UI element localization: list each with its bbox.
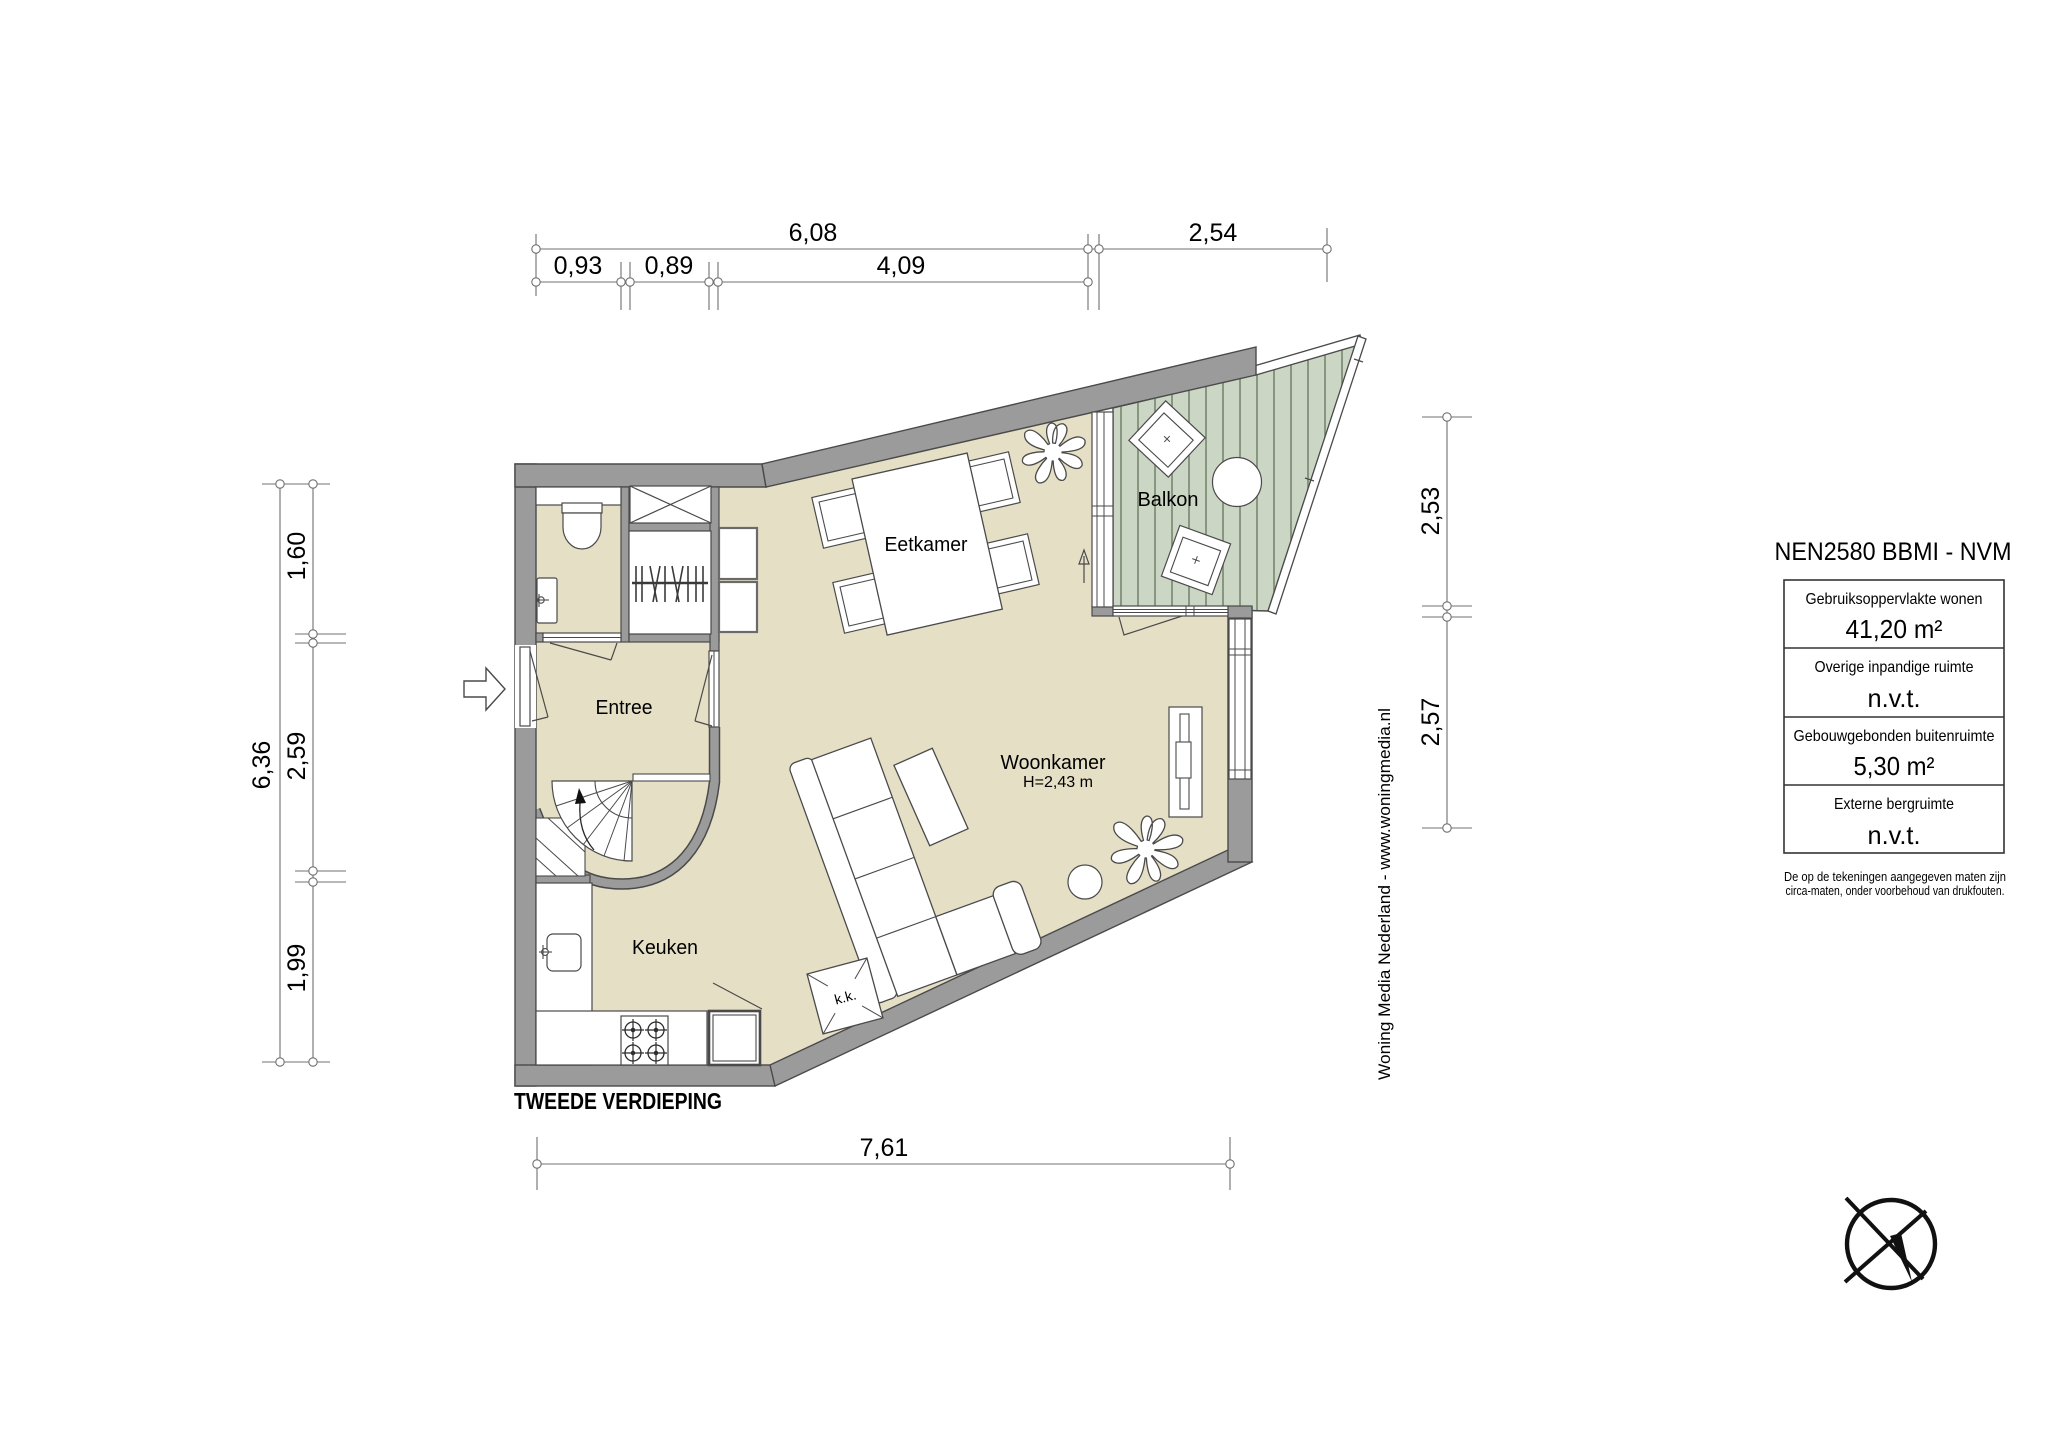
svg-text:De op de tekeningen aangegeven: De op de tekeningen aangegeven maten zij… [1784,869,2006,884]
svg-text:H=2,43 m: H=2,43 m [1023,774,1093,791]
svg-text:0,93: 0,93 [554,252,603,280]
svg-text:Eetkamer: Eetkamer [885,534,968,556]
svg-text:TWEEDE VERDIEPING: TWEEDE VERDIEPING [514,1088,722,1114]
svg-text:7,61: 7,61 [860,1134,909,1162]
svg-text:6,08: 6,08 [789,219,838,247]
svg-text:Woonkamer: Woonkamer [1001,752,1106,774]
svg-text:Keuken: Keuken [632,937,698,959]
svg-text:4,09: 4,09 [877,252,926,280]
svg-text:2,53: 2,53 [1417,487,1445,536]
svg-text:1,60: 1,60 [283,532,311,581]
svg-text:5,30 m²: 5,30 m² [1854,751,1935,781]
svg-text:Gebouwgebonden buitenruimte: Gebouwgebonden buitenruimte [1794,728,1995,745]
svg-text:circa-maten, onder voorbehoud: circa-maten, onder voorbehoud van drukfo… [1786,883,2005,898]
svg-text:Balkon: Balkon [1138,489,1199,511]
svg-text:2,57: 2,57 [1417,698,1445,747]
svg-text:0,89: 0,89 [645,252,694,280]
svg-text:1,99: 1,99 [283,944,311,993]
svg-text:2,59: 2,59 [283,732,311,781]
svg-text:n.v.t.: n.v.t. [1868,820,1921,850]
svg-text:41,20 m²: 41,20 m² [1846,614,1943,644]
svg-text:Gebruiksoppervlakte wonen: Gebruiksoppervlakte wonen [1806,591,1983,608]
svg-text:Woning Media Nederland - www.w: Woning Media Nederland - www.woningmedia… [1375,708,1394,1080]
svg-text:Externe bergruimte: Externe bergruimte [1834,796,1954,813]
svg-text:NEN2580 BBMI - NVM: NEN2580 BBMI - NVM [1775,538,2012,566]
svg-text:Overige inpandige ruimte: Overige inpandige ruimte [1815,659,1974,676]
svg-text:2,54: 2,54 [1189,219,1238,247]
svg-text:Entree: Entree [596,697,653,719]
svg-text:6,36: 6,36 [248,741,276,790]
svg-text:n.v.t.: n.v.t. [1868,683,1921,713]
